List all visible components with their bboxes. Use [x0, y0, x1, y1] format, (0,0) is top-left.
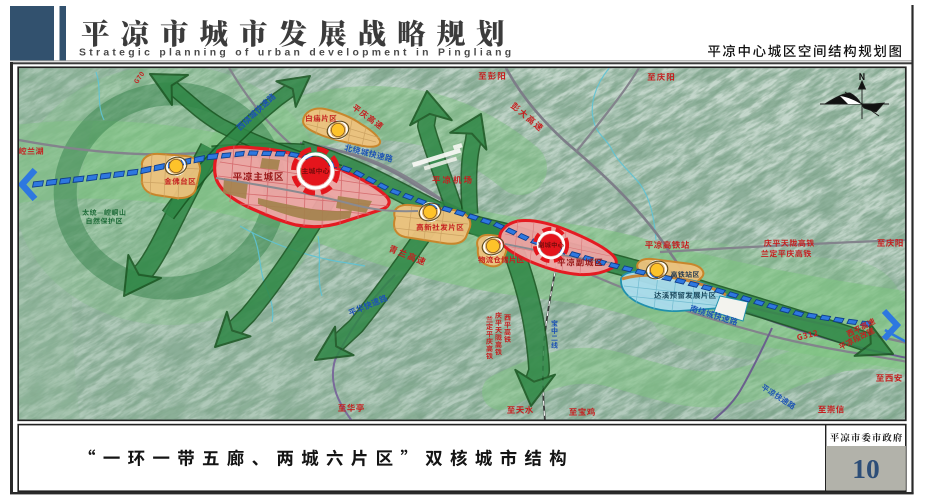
svg-text:Strategic planning of urban de: Strategic planning of urban development … — [79, 48, 514, 59]
svg-text:10: 10 — [852, 453, 880, 484]
